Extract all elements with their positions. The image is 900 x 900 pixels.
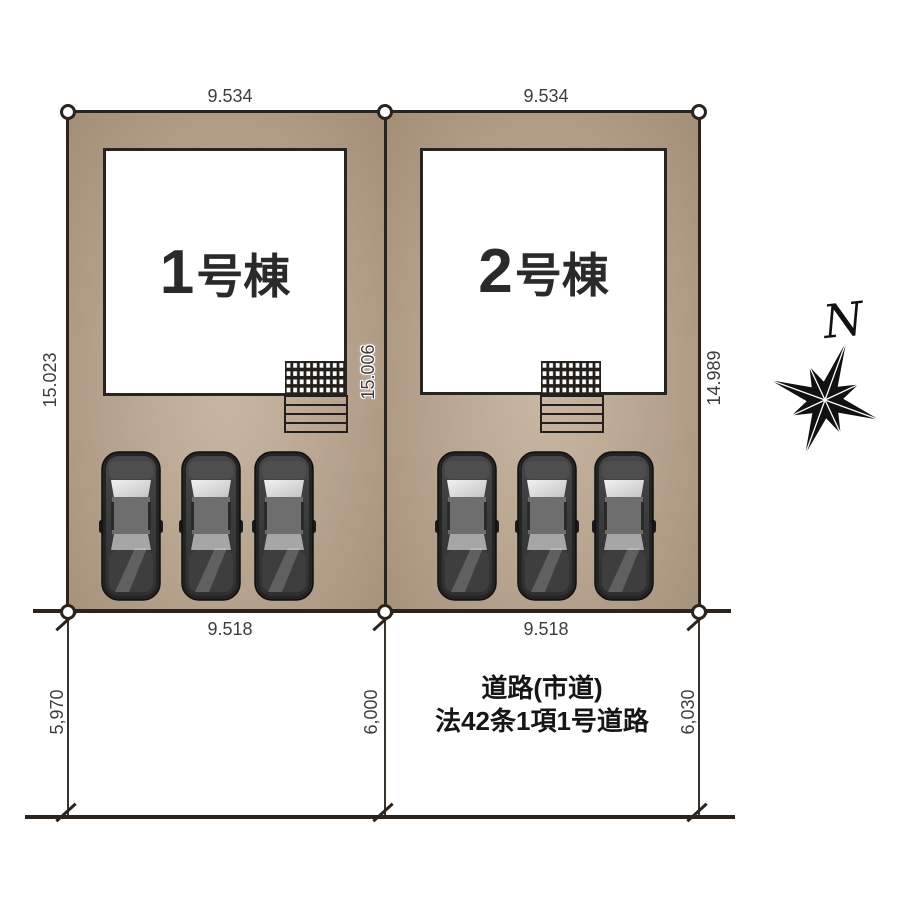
dimension-tick (372, 803, 393, 823)
boundary-point (377, 604, 393, 620)
building-2: 2号棟 (420, 148, 667, 395)
road-label-line2: 法42条1項1号道路 (384, 705, 700, 738)
dimension-tick (686, 803, 707, 823)
boundary-point (60, 604, 76, 620)
porch-tile-2 (541, 361, 601, 395)
road-width-center: 6,000 (361, 664, 381, 760)
dimension-extension-line (67, 612, 69, 815)
boundary-point (691, 104, 707, 120)
dim-bottom-plot-2: 9.518 (501, 619, 591, 640)
porch-steps-1 (284, 395, 348, 433)
building-2-number: 2 (478, 236, 514, 307)
dim-side-center: 15.006 (358, 324, 378, 420)
building-1-number: 1 (160, 237, 196, 308)
site-plan-canvas: 1号棟 2号棟 9.534 9.534 9.518 9.518 15.023 (0, 0, 900, 900)
road-label-line1: 道路(市道) (384, 672, 700, 705)
car-icon (592, 450, 656, 602)
dim-side-left: 15.023 (40, 332, 60, 428)
building-2-label: 2号棟 (478, 236, 608, 307)
road-width-left: 5,970 (47, 664, 67, 760)
dim-bottom-plot-1: 9.518 (185, 619, 275, 640)
car-icon (179, 450, 243, 602)
building-1-label: 1号棟 (160, 237, 290, 308)
compass-north-letter: N (819, 291, 867, 349)
car-icon (435, 450, 499, 602)
dim-top-plot-2: 9.534 (501, 86, 591, 107)
car-icon (515, 450, 579, 602)
porch-tile-1 (285, 361, 345, 395)
building-2-suffix: 号棟 (515, 237, 609, 306)
boundary-point (60, 104, 76, 120)
dimension-tick (55, 803, 76, 823)
dim-side-right: 14.989 (704, 330, 724, 426)
boundary-point (691, 604, 707, 620)
car-icon (252, 450, 316, 602)
compass-rose-icon: N (752, 288, 897, 473)
boundary-point (377, 104, 393, 120)
dim-top-plot-1: 9.534 (185, 86, 275, 107)
car-icon (99, 450, 163, 602)
building-1: 1号棟 (103, 148, 347, 396)
road-label: 道路(市道) 法42条1項1号道路 (384, 672, 700, 738)
building-1-suffix: 号棟 (196, 238, 290, 307)
porch-steps-2 (540, 395, 604, 433)
